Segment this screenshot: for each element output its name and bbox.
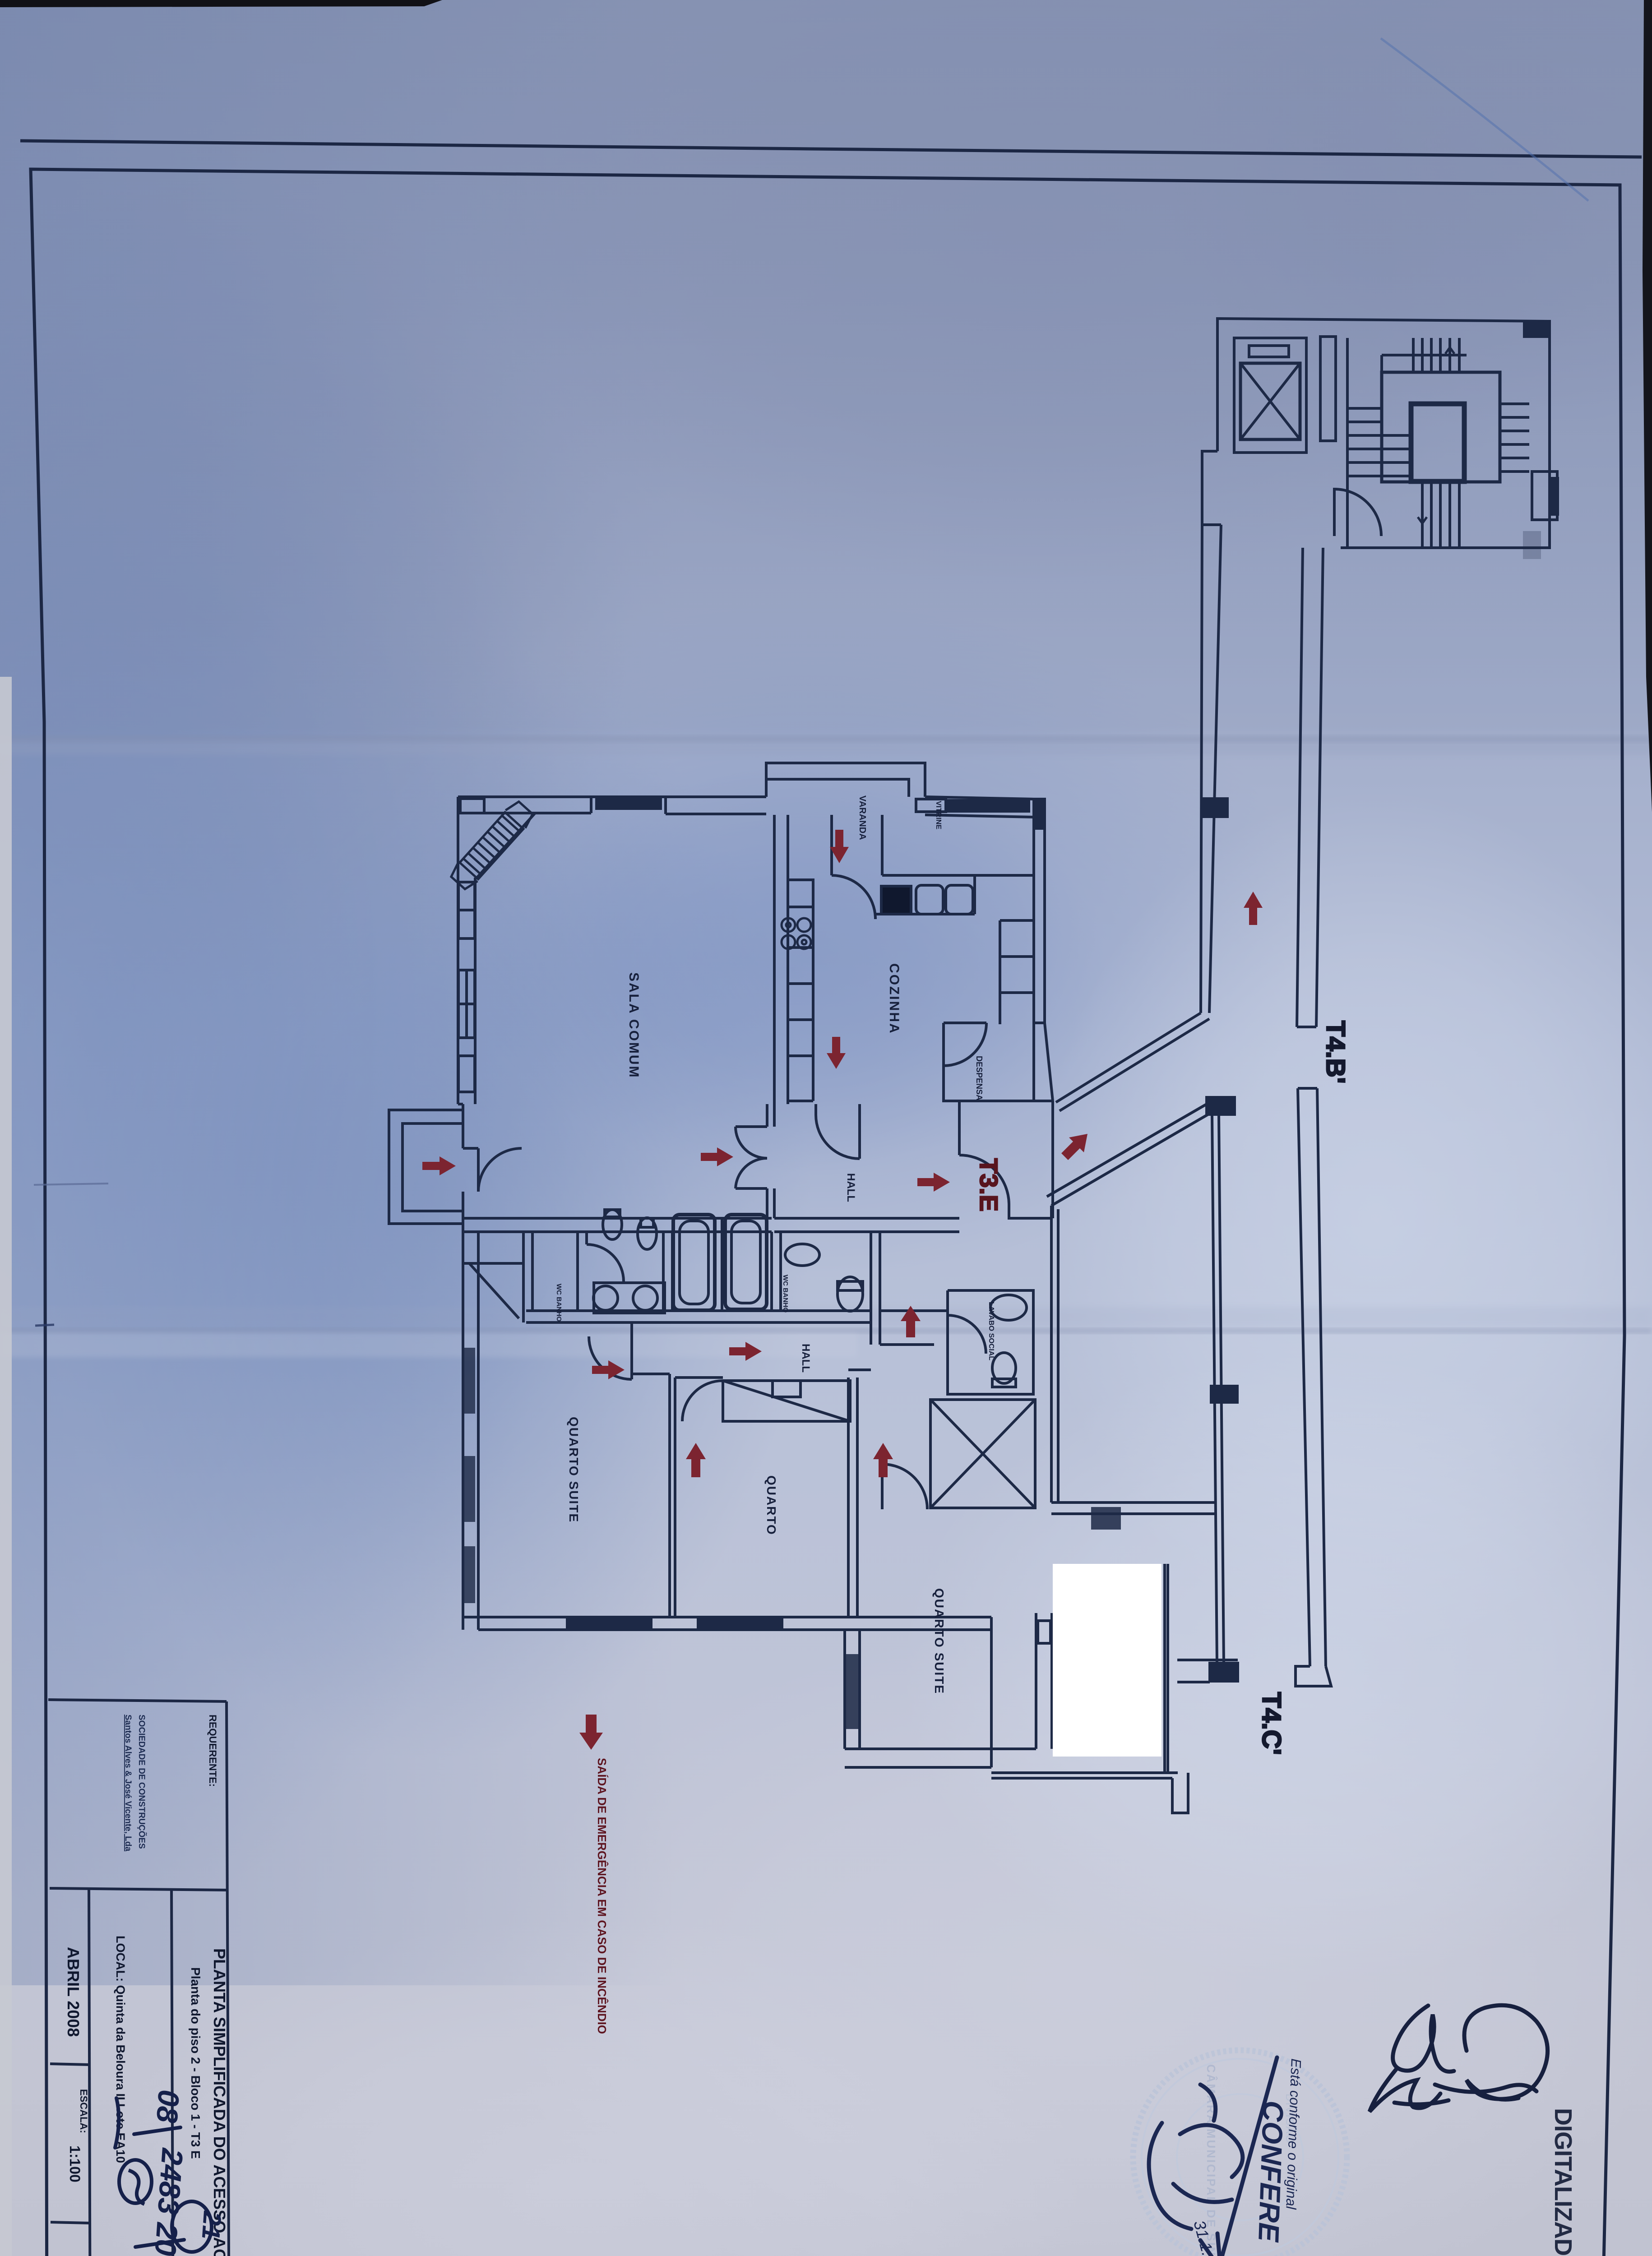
svg-text:LOCAL: Quinta da Beloura II: LOCAL: Quinta da Beloura II Lote EA10 [114, 1936, 127, 2163]
svg-text:QUARTO: QUARTO [764, 1475, 778, 1535]
svg-text:COZINHA: COZINHA [887, 963, 902, 1035]
svg-text:QUARTO SUITE: QUARTO SUITE [567, 1417, 581, 1523]
svg-text:PLANTA SIMPLIFICADA DO ACESSO: PLANTA SIMPLIFICADA DO ACESSO AO FOGO [210, 1948, 229, 2256]
svg-text:SOCIEDADE DE CONSTRUÇÕES: SOCIEDADE DE CONSTRUÇÕES [137, 1715, 147, 1849]
svg-text:Planta do piso 2 - Bloco 1 - T: Planta do piso 2 - Bloco 1 - T3 E [189, 1967, 203, 2159]
svg-text:VARANDA: VARANDA [857, 795, 867, 840]
svg-text:DIGITALIZADO: DIGITALIZADO [1550, 2108, 1577, 2256]
svg-text:T3.E: T3.E [975, 1158, 1003, 1211]
svg-text:SALA COMUM: SALA COMUM [626, 972, 641, 1079]
svg-text:1:100: 1:100 [67, 2145, 83, 2182]
svg-text:QUARTO SUITE: QUARTO SUITE [932, 1588, 946, 1694]
svg-text:ESCALA:: ESCALA: [78, 2089, 89, 2133]
svg-text:WC BANHO: WC BANHO [555, 1284, 563, 1322]
svg-text:REQUERENTE:: REQUERENTE: [207, 1715, 218, 1787]
svg-text:HALL: HALL [800, 1344, 812, 1373]
svg-text:T4.B': T4.B' [1321, 1021, 1350, 1083]
svg-text:T4.C': T4.C' [1257, 1692, 1286, 1755]
svg-text:ABRIL 2008: ABRIL 2008 [64, 1947, 83, 2037]
svg-text:DESPENSA: DESPENSA [975, 1056, 984, 1100]
svg-text:08: 08 [150, 2089, 186, 2124]
svg-text:Santos Alves & José Vicente, L: Santos Alves & José Vicente, Lda [123, 1715, 133, 1851]
svg-text:SAÍDA DE EMERGÊNCIA EM CASO DE: SAÍDA DE EMERGÊNCIA EM CASO DE INCÊNDIO [595, 1758, 609, 2034]
svg-text:LAVABO SOCIAL: LAVABO SOCIAL [987, 1302, 995, 1360]
svg-text:VITRINE: VITRINE [935, 801, 942, 829]
svg-text:CONFERE: CONFERE [1252, 2100, 1290, 2244]
svg-text:21: 21 [197, 2210, 227, 2241]
svg-text:HALL: HALL [845, 1173, 857, 1202]
svg-text:WC BANHO: WC BANHO [782, 1275, 789, 1313]
